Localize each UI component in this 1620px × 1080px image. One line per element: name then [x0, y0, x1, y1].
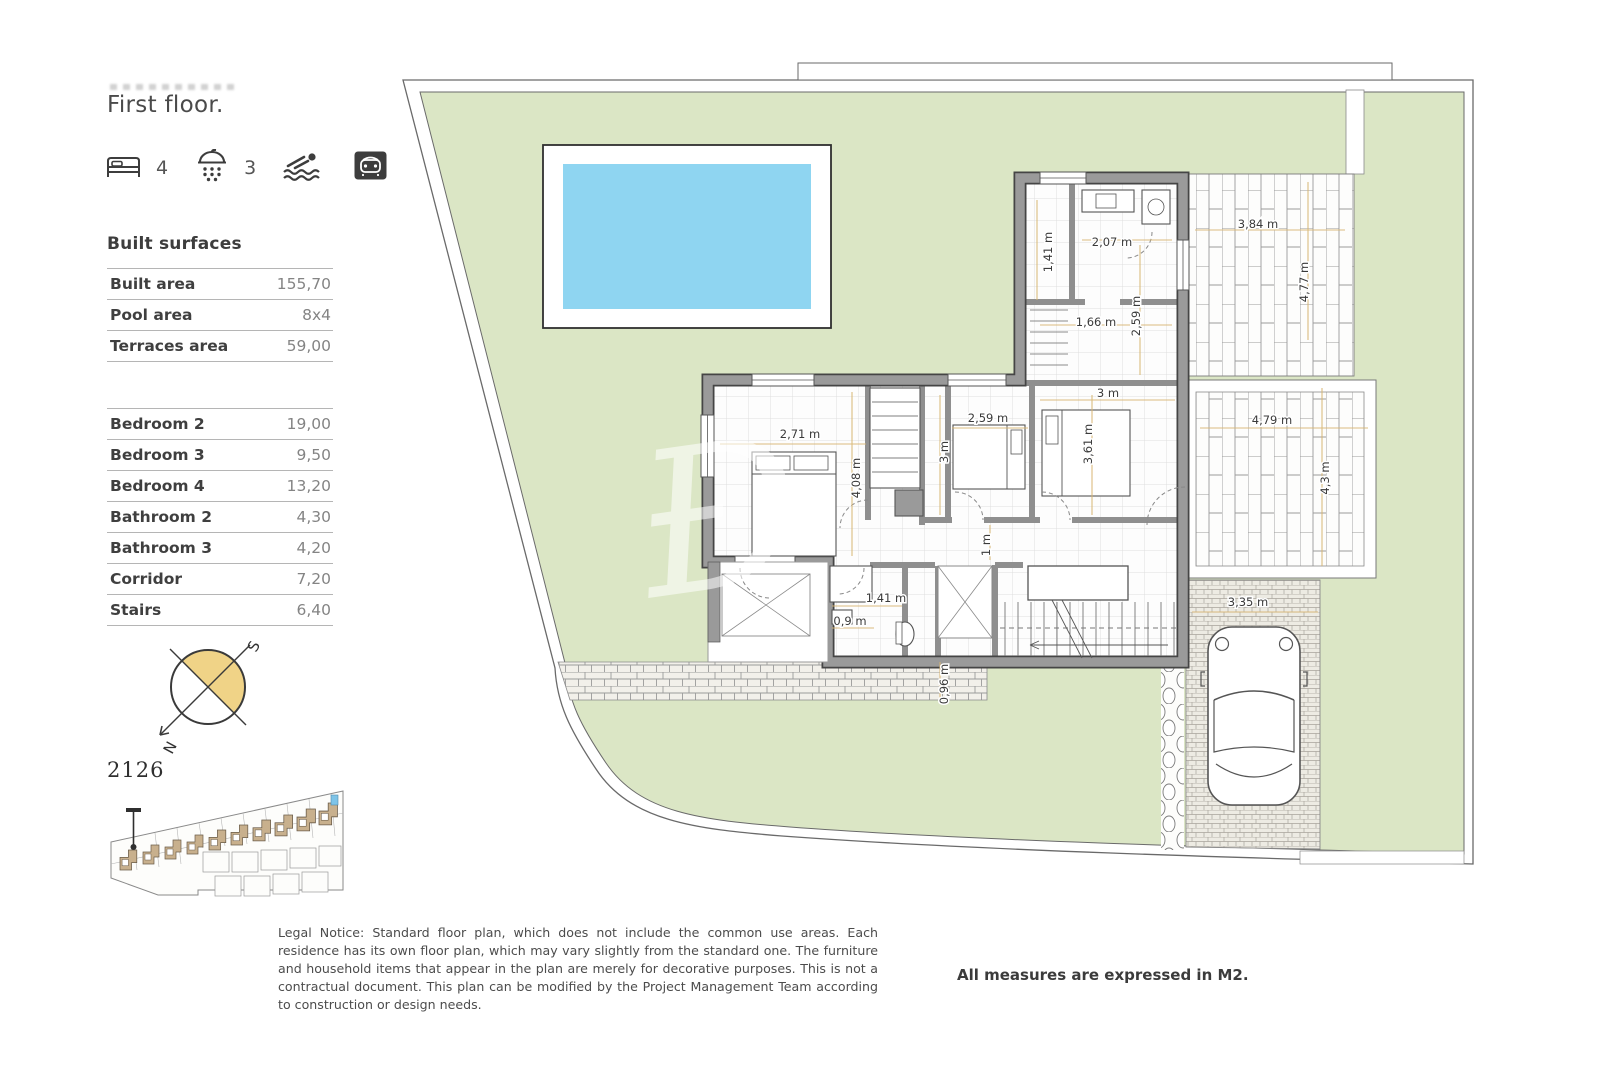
dim-label: 2,59 m	[968, 411, 1008, 425]
measures-note: All measures are expressed in M2.	[957, 966, 1249, 984]
pool	[543, 145, 831, 328]
floor-plan: 1,41 m 2,07 m 3,84 m 4,77 m 1,66 m 2,59 …	[0, 0, 1620, 1080]
dim-label: 3,61 m	[1081, 424, 1095, 464]
plot-top-notch	[798, 63, 1392, 80]
watermark: Đ	[622, 392, 817, 646]
dim-label: 3,84 m	[1238, 217, 1278, 231]
floor-plan-page: First floor. 4	[0, 0, 1620, 1080]
dim-label: 4,77 m	[1297, 262, 1311, 302]
dim-label: 3,35 m	[1228, 595, 1268, 609]
car	[1201, 627, 1307, 805]
dim-label: 1,41 m	[866, 591, 906, 605]
dim-label: 1,66 m	[1076, 315, 1116, 329]
pool-water	[563, 164, 811, 309]
driveway-entrance	[1300, 851, 1464, 864]
dim-label: 1 m	[979, 534, 993, 556]
dim-label: 4,79 m	[1252, 413, 1292, 427]
dim-label: 2,07 m	[1092, 235, 1132, 249]
skylight	[938, 566, 992, 638]
dim-label: 3 m	[937, 441, 951, 463]
dim-label: 2,59 m	[1129, 296, 1143, 336]
top-terrace	[1186, 174, 1354, 376]
dim-label: 3 m	[1097, 386, 1119, 400]
dim-label: 4,08 m	[849, 458, 863, 498]
dim-label: 0,9 m	[833, 614, 866, 628]
dim-label: 4,3 m	[1318, 461, 1332, 494]
side-path	[1346, 90, 1364, 174]
dim-label: 1,41 m	[1041, 232, 1055, 272]
right-terrace	[1186, 380, 1376, 578]
legal-notice: Legal Notice: Standard floor plan, which…	[278, 924, 878, 1013]
dim-label: 0,96 m	[937, 664, 951, 704]
